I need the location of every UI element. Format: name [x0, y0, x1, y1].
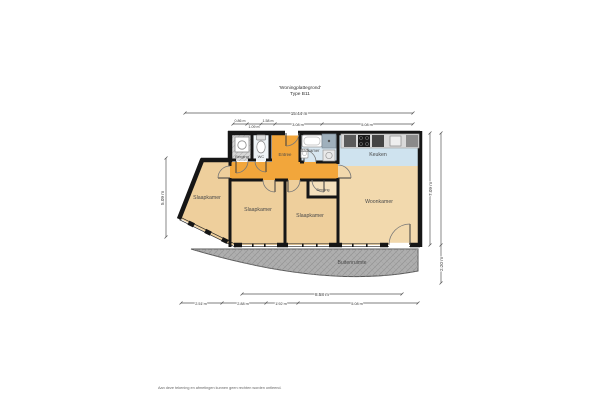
wall-chunk-diagonal [205, 231, 211, 234]
window-mullion [264, 243, 266, 247]
dim-right-label: 7.09 m [428, 182, 433, 196]
kitchen-sink-icon [390, 136, 401, 146]
front-door-gap [285, 131, 298, 136]
room-label-entree: Entree [279, 152, 292, 157]
dim-bottom-seg-3: 5.08 m [351, 302, 363, 306]
dim-top-seg-1: 1.09 m [249, 125, 260, 129]
kitchen-appliance-icon [344, 135, 356, 147]
room-label-slaapkamer-mid1: Slaapkamer [244, 207, 272, 213]
toilet-tank-icon [257, 135, 266, 140]
dim-top-seg-2: 1.58 m [263, 119, 274, 123]
washer2-icon [323, 150, 335, 161]
footer-disclaimer: Aan deze tekening en afmetingen kunnen g… [158, 386, 282, 390]
window-mullion [316, 243, 318, 247]
wall-chunk-diagonal [222, 239, 228, 242]
floorplan-page: 'Woningplattegrond' Type B11 Buitenruimt… [0, 0, 600, 400]
dim-balcony-label: 8.58 m [315, 292, 329, 297]
dim-balcony-depth-label: 2.20 m [439, 257, 444, 271]
dim-bottom-seg-0: 2.51 m [195, 302, 207, 306]
dim-top-seg-4: 5.08 m [361, 123, 373, 127]
room-label-keuken: Keuken [369, 152, 387, 158]
shower-drain-icon [328, 140, 330, 142]
room-label-wc: WC [258, 154, 265, 159]
window-mullion [252, 243, 254, 247]
dim-top-total-label: 15.44 m [291, 111, 308, 116]
room-label-badkamer: Badkamer [300, 148, 320, 153]
washer-icon [235, 137, 249, 152]
wall-chunk-diagonal [188, 223, 194, 226]
kitchen-appliance-icon [372, 135, 384, 147]
room-label-woonkamer: Woonkamer [365, 199, 393, 205]
window-mullion [366, 243, 368, 247]
room-label-slaapkamer-mid2: Slaapkamer [296, 213, 324, 219]
dim-bottom-seg-2: 1.92 m [275, 302, 287, 306]
balcony-door-gap [389, 243, 409, 247]
dim-left-label: 5.09 m [160, 191, 165, 205]
fridge-icon [406, 135, 418, 147]
room-label-berging-small: Berging [316, 188, 329, 192]
dim-bottom-seg-1: 2.88 m [237, 302, 249, 306]
window-mullion [302, 243, 304, 247]
balcony-hatch [191, 249, 418, 277]
room-label-berging-top: Berging [235, 154, 249, 159]
balcony: Buitenruimte [191, 249, 418, 277]
plan-title-line2: Type B11 [290, 91, 310, 97]
room-label-slaapkamer-left: Slaapkamer [193, 195, 221, 201]
dim-top-seg-0: 0.86 m [235, 119, 246, 123]
room-label-balkon: Buitenruimte [337, 260, 366, 266]
plan-title: 'Woningplattegrond' Type B11 [279, 85, 321, 97]
window-mullion [352, 243, 354, 247]
toilet-bowl-icon [257, 141, 265, 153]
plan-title-line1: 'Woningplattegrond' [279, 85, 321, 91]
floorplan-canvas: 'Woningplattegrond' Type B11 Buitenruimt… [0, 0, 600, 400]
dim-top-seg-3: 3.08 m [292, 123, 304, 127]
